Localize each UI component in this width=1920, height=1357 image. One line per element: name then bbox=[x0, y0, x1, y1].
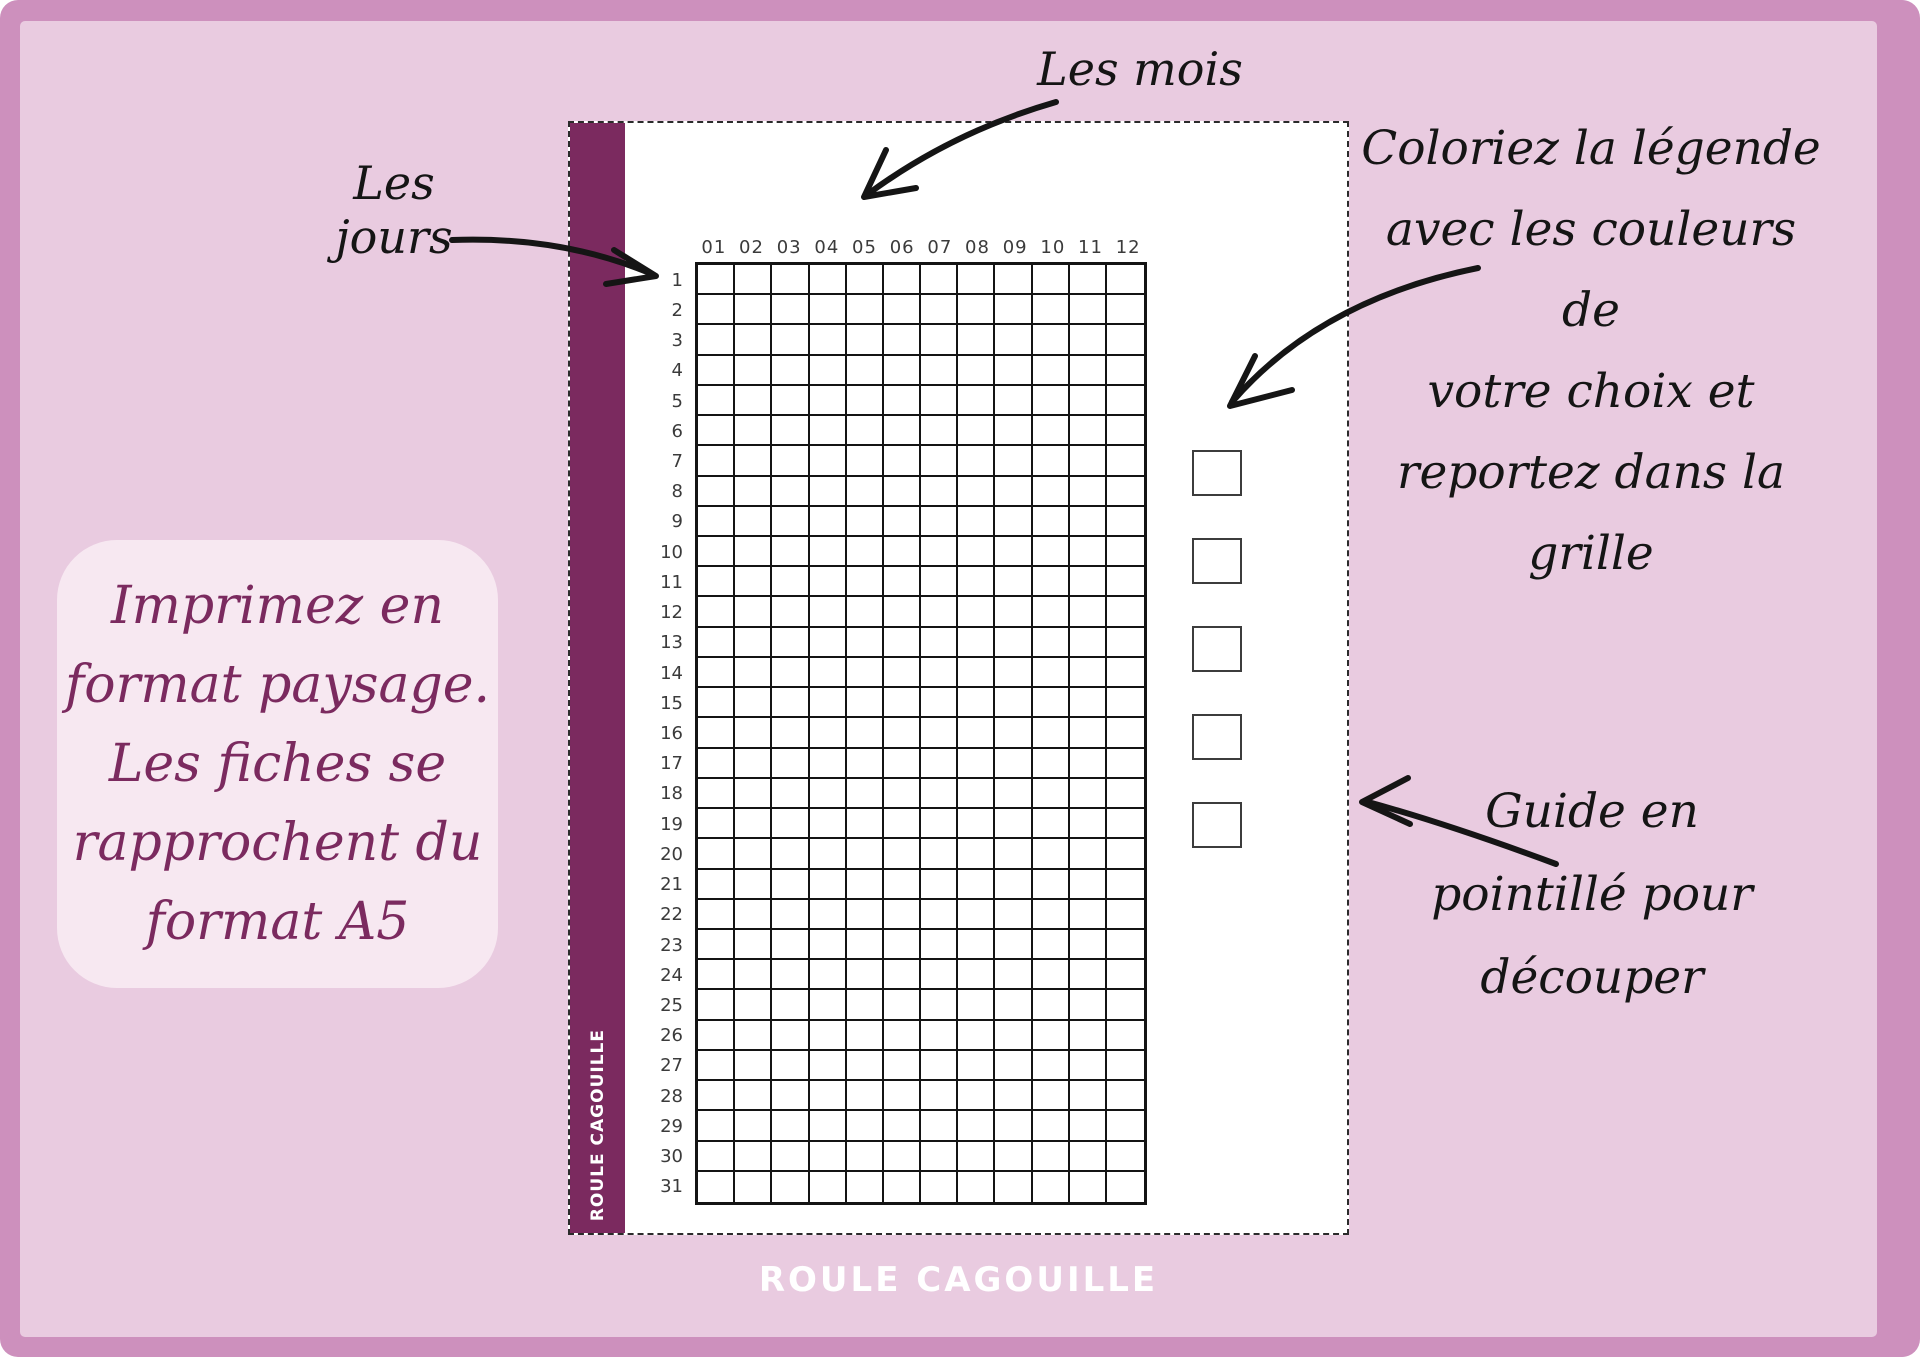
grid-cell bbox=[921, 386, 958, 416]
grid-cell bbox=[810, 839, 847, 869]
grid-cell bbox=[958, 870, 995, 900]
grid-cell bbox=[735, 839, 772, 869]
grid-cell bbox=[1107, 930, 1144, 960]
grid-cell bbox=[995, 597, 1032, 627]
grid-cell bbox=[1070, 839, 1107, 869]
grid-cell bbox=[810, 990, 847, 1020]
grid-cell bbox=[847, 839, 884, 869]
grid-cell bbox=[1033, 1081, 1070, 1111]
grid-cell bbox=[1070, 477, 1107, 507]
month-header: 01 bbox=[695, 237, 733, 258]
grid-cell bbox=[1070, 930, 1107, 960]
grid-cell bbox=[810, 446, 847, 476]
legend-box bbox=[1192, 802, 1242, 848]
grid-cell bbox=[884, 386, 921, 416]
grid-cell bbox=[698, 809, 735, 839]
grid-cell bbox=[884, 597, 921, 627]
grid-cell bbox=[698, 386, 735, 416]
grid-cell bbox=[698, 507, 735, 537]
grid-cell bbox=[810, 386, 847, 416]
month-header: 05 bbox=[846, 237, 884, 258]
grid-cell bbox=[921, 265, 958, 295]
grid-cell bbox=[958, 779, 995, 809]
grid-cell bbox=[1070, 1081, 1107, 1111]
grid-cell bbox=[884, 990, 921, 1020]
grid-cell bbox=[921, 688, 958, 718]
grid-cell bbox=[995, 809, 1032, 839]
grid-cell bbox=[847, 688, 884, 718]
grid-cell bbox=[810, 597, 847, 627]
grid-cell bbox=[995, 477, 1032, 507]
grid-cell bbox=[810, 870, 847, 900]
grid-cell bbox=[995, 537, 1032, 567]
day-label: 6 bbox=[628, 416, 690, 446]
grid-cell bbox=[921, 537, 958, 567]
grid-cell bbox=[847, 990, 884, 1020]
grid-cell bbox=[1033, 718, 1070, 748]
grid-cell bbox=[847, 265, 884, 295]
cut-guide-note-line: découper bbox=[1378, 936, 1806, 1019]
grid-cell bbox=[884, 356, 921, 386]
grid-cell bbox=[698, 870, 735, 900]
grid-cell bbox=[810, 1051, 847, 1081]
grid-cell bbox=[921, 1051, 958, 1081]
grid-cell bbox=[995, 1172, 1032, 1202]
grid-cell bbox=[884, 1081, 921, 1111]
grid-cell bbox=[1033, 265, 1070, 295]
grid-cell bbox=[810, 658, 847, 688]
grid-cell bbox=[1033, 779, 1070, 809]
grid-cell bbox=[958, 386, 995, 416]
grid-cell bbox=[772, 809, 809, 839]
grid-cell bbox=[1107, 507, 1144, 537]
grid-cell bbox=[772, 446, 809, 476]
months-annotation: Les mois bbox=[1037, 42, 1243, 96]
grid-cell bbox=[735, 1081, 772, 1111]
grid-cell bbox=[698, 1111, 735, 1141]
grid-cell bbox=[698, 325, 735, 355]
grid-cell bbox=[1107, 295, 1144, 325]
cut-guide-note: Guide enpointillé pourdécouper bbox=[1378, 770, 1806, 1019]
grid-cell bbox=[810, 1142, 847, 1172]
grid-cell bbox=[958, 1081, 995, 1111]
grid-cell bbox=[772, 265, 809, 295]
grid-cell bbox=[847, 597, 884, 627]
grid-cell bbox=[958, 1142, 995, 1172]
grid-cell bbox=[772, 1172, 809, 1202]
grid-cell bbox=[772, 658, 809, 688]
grid-cell bbox=[884, 507, 921, 537]
grid-cell bbox=[847, 718, 884, 748]
grid-cell bbox=[735, 990, 772, 1020]
grid-cell bbox=[884, 1021, 921, 1051]
grid-cell bbox=[698, 628, 735, 658]
grid-cell bbox=[1070, 1021, 1107, 1051]
legend-instruction-note-line: votre choix et bbox=[1358, 351, 1824, 432]
grid-cell bbox=[698, 477, 735, 507]
grid-cell bbox=[958, 749, 995, 779]
grid-cell bbox=[810, 960, 847, 990]
grid-cell bbox=[847, 446, 884, 476]
grid-cell bbox=[1070, 265, 1107, 295]
day-label: 22 bbox=[628, 900, 690, 930]
grid-cell bbox=[698, 295, 735, 325]
grid-cell bbox=[847, 416, 884, 446]
grid-cell bbox=[698, 900, 735, 930]
legend-instruction-note-line: Coloriez la légende bbox=[1358, 108, 1824, 189]
grid-cell bbox=[810, 507, 847, 537]
month-header: 11 bbox=[1072, 237, 1110, 258]
grid-cell bbox=[772, 597, 809, 627]
grid-cell bbox=[1033, 658, 1070, 688]
grid-cell bbox=[735, 628, 772, 658]
grid-cell bbox=[995, 718, 1032, 748]
print-note-text-line: format paysage. bbox=[57, 646, 498, 725]
grid-cell bbox=[1107, 567, 1144, 597]
day-label: 25 bbox=[628, 990, 690, 1020]
grid-cell bbox=[847, 1051, 884, 1081]
grid-cell bbox=[921, 1081, 958, 1111]
grid-cell bbox=[698, 1021, 735, 1051]
grid-cell bbox=[958, 295, 995, 325]
grid-cell bbox=[735, 416, 772, 446]
grid-cell bbox=[1033, 1051, 1070, 1081]
grid-cell bbox=[958, 265, 995, 295]
grid-cell bbox=[995, 900, 1032, 930]
grid-cell bbox=[810, 1111, 847, 1141]
grid-cell bbox=[995, 1051, 1032, 1081]
grid-cell bbox=[810, 749, 847, 779]
grid-cell bbox=[698, 265, 735, 295]
month-header: 10 bbox=[1034, 237, 1072, 258]
grid-cell bbox=[884, 416, 921, 446]
grid-cell bbox=[995, 356, 1032, 386]
grid-cell bbox=[884, 839, 921, 869]
grid-cell bbox=[735, 749, 772, 779]
day-label: 10 bbox=[628, 537, 690, 567]
day-label: 9 bbox=[628, 507, 690, 537]
grid-cell bbox=[772, 779, 809, 809]
grid-cell bbox=[810, 1021, 847, 1051]
grid-cell bbox=[810, 628, 847, 658]
grid-cell bbox=[772, 688, 809, 718]
grid-cell bbox=[958, 325, 995, 355]
day-label: 14 bbox=[628, 658, 690, 688]
grid-cell bbox=[698, 597, 735, 627]
month-header: 02 bbox=[733, 237, 771, 258]
grid-cell bbox=[1070, 356, 1107, 386]
legend-box bbox=[1192, 714, 1242, 760]
grid-cell bbox=[884, 779, 921, 809]
day-label: 23 bbox=[628, 930, 690, 960]
day-label: 12 bbox=[628, 597, 690, 627]
grid-cell bbox=[995, 567, 1032, 597]
grid-cell bbox=[1033, 930, 1070, 960]
grid-cell bbox=[921, 990, 958, 1020]
grid-cell bbox=[884, 325, 921, 355]
legend-box bbox=[1192, 538, 1242, 584]
grid-cell bbox=[884, 870, 921, 900]
grid-cell bbox=[921, 960, 958, 990]
grid-cell bbox=[735, 779, 772, 809]
grid-cell bbox=[1033, 295, 1070, 325]
grid-cell bbox=[1107, 356, 1144, 386]
grid-cell bbox=[698, 688, 735, 718]
grid-cell bbox=[958, 597, 995, 627]
legend-instruction-note: Coloriez la légendeavec les couleurs dev… bbox=[1358, 108, 1824, 594]
grid-cell bbox=[1107, 900, 1144, 930]
grid-cell bbox=[1107, 386, 1144, 416]
grid-cell bbox=[1107, 870, 1144, 900]
grid-cell bbox=[735, 325, 772, 355]
print-note-text-line: Imprimez en bbox=[57, 567, 498, 646]
grid-cell bbox=[958, 900, 995, 930]
grid-cell bbox=[958, 1051, 995, 1081]
grid-cell bbox=[1107, 960, 1144, 990]
grid-cell bbox=[884, 1051, 921, 1081]
grid-cell bbox=[810, 567, 847, 597]
grid-cell bbox=[995, 1021, 1032, 1051]
grid-cell bbox=[1033, 477, 1070, 507]
grid-cell bbox=[884, 930, 921, 960]
grid-cell bbox=[995, 779, 1032, 809]
grid-cell bbox=[958, 960, 995, 990]
day-label: 1 bbox=[628, 265, 690, 295]
grid-cell bbox=[810, 537, 847, 567]
grid-cell bbox=[698, 718, 735, 748]
grid-cell bbox=[698, 416, 735, 446]
grid-cell bbox=[847, 477, 884, 507]
grid-cell bbox=[810, 779, 847, 809]
grid-cell bbox=[884, 265, 921, 295]
grid-cell bbox=[995, 1111, 1032, 1141]
grid-cell bbox=[847, 1111, 884, 1141]
grid-cell bbox=[995, 658, 1032, 688]
legend-instruction-note-line: avec les couleurs de bbox=[1358, 189, 1824, 351]
grid-cell bbox=[810, 1172, 847, 1202]
grid-cell bbox=[698, 567, 735, 597]
grid-cell bbox=[772, 749, 809, 779]
grid-cell bbox=[1107, 1021, 1144, 1051]
grid-cell bbox=[847, 658, 884, 688]
grid-cell bbox=[772, 960, 809, 990]
grid-cell bbox=[1033, 325, 1070, 355]
grid-cell bbox=[735, 567, 772, 597]
grid-cell bbox=[698, 839, 735, 869]
month-header: 12 bbox=[1109, 237, 1147, 258]
grid-cell bbox=[921, 567, 958, 597]
month-header: 06 bbox=[883, 237, 921, 258]
grid-cell bbox=[1107, 446, 1144, 476]
grid-cell bbox=[958, 930, 995, 960]
grid-cell bbox=[1107, 1111, 1144, 1141]
cut-guide-note-line: Guide en bbox=[1378, 770, 1806, 853]
grid-cell bbox=[995, 628, 1032, 658]
day-label: 31 bbox=[628, 1172, 690, 1202]
grid-cell bbox=[1033, 597, 1070, 627]
grid-cell bbox=[958, 1111, 995, 1141]
day-label: 18 bbox=[628, 779, 690, 809]
grid-cell bbox=[1070, 1051, 1107, 1081]
grid-cell bbox=[698, 930, 735, 960]
grid-cell bbox=[884, 567, 921, 597]
grid-cell bbox=[921, 507, 958, 537]
grid-cell bbox=[1107, 416, 1144, 446]
grid-cell bbox=[810, 295, 847, 325]
grid-cell bbox=[847, 960, 884, 990]
grid-cell bbox=[735, 597, 772, 627]
grid-cell bbox=[810, 416, 847, 446]
grid-cell bbox=[884, 537, 921, 567]
print-note-text-line: Les fiches se bbox=[57, 725, 498, 804]
grid-cell bbox=[1107, 990, 1144, 1020]
grid-cell bbox=[810, 325, 847, 355]
month-header: 07 bbox=[921, 237, 959, 258]
grid-cell bbox=[1033, 1111, 1070, 1141]
grid-cell bbox=[698, 356, 735, 386]
grid-cell bbox=[995, 688, 1032, 718]
spine-brand-text: ROULE CAGOUILLE bbox=[588, 1029, 608, 1221]
grid-cell bbox=[958, 839, 995, 869]
grid-cell bbox=[1070, 446, 1107, 476]
grid-cell bbox=[921, 628, 958, 658]
poster-background: ROULE CAGOUILLE 010203040506070809101112… bbox=[0, 0, 1920, 1357]
grid-cell bbox=[958, 809, 995, 839]
day-label: 27 bbox=[628, 1051, 690, 1081]
day-label: 5 bbox=[628, 386, 690, 416]
day-label: 20 bbox=[628, 839, 690, 869]
grid-cell bbox=[1070, 900, 1107, 930]
grid-cell bbox=[1033, 628, 1070, 658]
day-label: 21 bbox=[628, 870, 690, 900]
grid-cell bbox=[1107, 1172, 1144, 1202]
grid-cell bbox=[1070, 416, 1107, 446]
grid-cell bbox=[847, 507, 884, 537]
grid-cell bbox=[735, 718, 772, 748]
grid-cell bbox=[1107, 749, 1144, 779]
day-label: 2 bbox=[628, 295, 690, 325]
day-label: 17 bbox=[628, 749, 690, 779]
grid-cell bbox=[995, 1142, 1032, 1172]
day-label: 8 bbox=[628, 477, 690, 507]
grid-cell bbox=[1070, 809, 1107, 839]
grid-cell bbox=[921, 1142, 958, 1172]
grid-cell bbox=[772, 1081, 809, 1111]
grid-cell bbox=[847, 386, 884, 416]
grid-cell bbox=[1033, 900, 1070, 930]
grid-cell bbox=[847, 779, 884, 809]
grid-cell bbox=[884, 718, 921, 748]
grid-cell bbox=[772, 930, 809, 960]
grid-cell bbox=[995, 446, 1032, 476]
days-annotation: Les jours bbox=[288, 156, 500, 264]
day-label: 7 bbox=[628, 446, 690, 476]
print-note-text-line: rapprochent du bbox=[57, 804, 498, 883]
grid-cell bbox=[1107, 688, 1144, 718]
grid-cell bbox=[921, 749, 958, 779]
grid-cell bbox=[1070, 325, 1107, 355]
day-label: 11 bbox=[628, 567, 690, 597]
grid-cell bbox=[847, 537, 884, 567]
grid-cell bbox=[1070, 1142, 1107, 1172]
month-header: 03 bbox=[770, 237, 808, 258]
grid-cell bbox=[921, 1172, 958, 1202]
day-label: 26 bbox=[628, 1021, 690, 1051]
grid-cell bbox=[847, 1021, 884, 1051]
grid-cell bbox=[810, 809, 847, 839]
grid-cell bbox=[772, 356, 809, 386]
grid-cell bbox=[995, 325, 1032, 355]
grid-cell bbox=[921, 809, 958, 839]
grid-cell bbox=[1033, 960, 1070, 990]
grid-cell bbox=[1070, 658, 1107, 688]
grid-cell bbox=[735, 809, 772, 839]
grid-cell bbox=[847, 809, 884, 839]
grid-cell bbox=[1070, 960, 1107, 990]
grid-cell bbox=[921, 718, 958, 748]
grid-cell bbox=[1033, 870, 1070, 900]
grid-cell bbox=[810, 930, 847, 960]
grid-cell bbox=[1070, 718, 1107, 748]
grid-cell bbox=[995, 930, 1032, 960]
day-label: 15 bbox=[628, 688, 690, 718]
grid-cell bbox=[698, 658, 735, 688]
grid-cell bbox=[884, 809, 921, 839]
grid-cell bbox=[1033, 990, 1070, 1020]
day-label: 3 bbox=[628, 325, 690, 355]
grid-cell bbox=[1033, 809, 1070, 839]
grid-cell bbox=[810, 688, 847, 718]
day-label: 19 bbox=[628, 809, 690, 839]
grid-cell bbox=[1033, 1021, 1070, 1051]
grid-cell bbox=[1107, 658, 1144, 688]
grid-cell bbox=[735, 1021, 772, 1051]
grid-cell bbox=[921, 930, 958, 960]
grid-cell bbox=[735, 1142, 772, 1172]
grid-cell bbox=[1070, 507, 1107, 537]
grid-cell bbox=[1107, 597, 1144, 627]
grid-cell bbox=[921, 356, 958, 386]
grid-cell bbox=[735, 900, 772, 930]
grid-cell bbox=[772, 567, 809, 597]
day-label: 24 bbox=[628, 960, 690, 990]
grid-cell bbox=[1107, 628, 1144, 658]
grid-cell bbox=[1033, 507, 1070, 537]
day-labels: 1234567891011121314151617181920212223242… bbox=[628, 265, 690, 1202]
day-label: 16 bbox=[628, 718, 690, 748]
grid-cell bbox=[995, 507, 1032, 537]
grid-cell bbox=[772, 718, 809, 748]
grid-cell bbox=[1033, 386, 1070, 416]
grid-cell bbox=[698, 446, 735, 476]
grid-cell bbox=[958, 477, 995, 507]
grid-cell bbox=[735, 356, 772, 386]
grid-cell bbox=[995, 960, 1032, 990]
grid-cell bbox=[1070, 870, 1107, 900]
grid-cell bbox=[698, 1081, 735, 1111]
grid-cell bbox=[995, 990, 1032, 1020]
grid-cell bbox=[921, 900, 958, 930]
grid-cell bbox=[958, 356, 995, 386]
grid-cell bbox=[735, 1172, 772, 1202]
grid-cell bbox=[735, 658, 772, 688]
grid-cell bbox=[847, 567, 884, 597]
grid-cell bbox=[1070, 749, 1107, 779]
grid-cell bbox=[1107, 1081, 1144, 1111]
print-note-box: Imprimez enformat paysage.Les fiches ser… bbox=[57, 540, 498, 988]
grid-cell bbox=[1107, 809, 1144, 839]
grid-cell bbox=[921, 446, 958, 476]
